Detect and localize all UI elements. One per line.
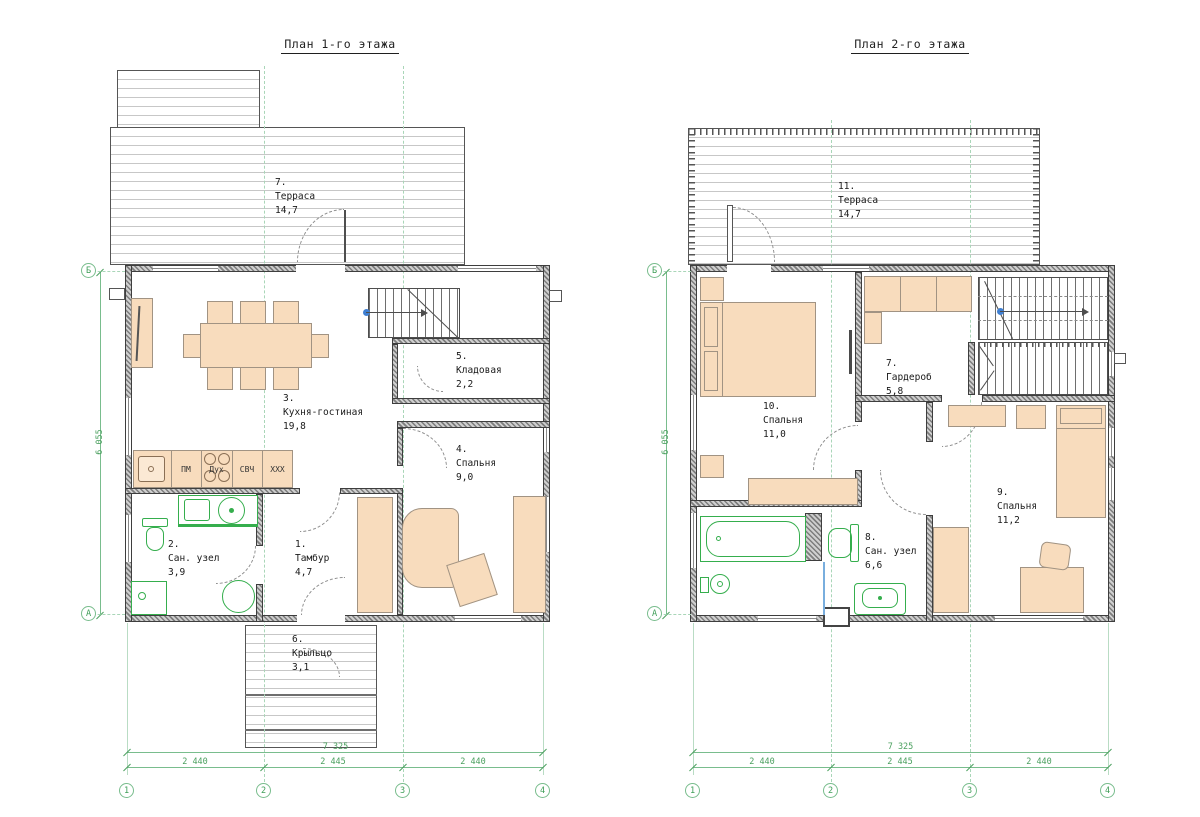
room-area: 5,8 (886, 385, 932, 399)
pillow (704, 307, 718, 347)
room-area: 3,1 (292, 661, 332, 675)
room-number: 11. (838, 180, 878, 194)
oven-label: Дух (201, 450, 232, 488)
room-name: Кухня-гостиная (283, 406, 363, 420)
sink-drain (148, 466, 154, 472)
room-name: Спальня (997, 500, 1037, 514)
bed-divider (722, 303, 723, 396)
bedroom-door-arc (403, 428, 447, 468)
tambur-wardrobe (357, 497, 393, 613)
grid-axis-2 (264, 66, 265, 782)
dim-total-width: 7 325 (873, 742, 928, 752)
room-name: Сан. узел (865, 545, 916, 559)
room-label-terrace2: 11. Терраса 14,7 (838, 180, 878, 222)
shelf-divider (900, 276, 901, 312)
window (995, 615, 1083, 622)
tv-stand (131, 298, 153, 368)
grid-bubble-3: 3 (962, 783, 977, 798)
entrance-door-arc (301, 577, 345, 615)
room-area: 9,0 (456, 471, 496, 485)
room-label-bedroom10: 10. Спальня 11,0 (763, 400, 803, 442)
storage-wall-bottom (392, 398, 550, 404)
tv-panel (849, 330, 852, 374)
dining-table (200, 323, 312, 368)
dresser (748, 478, 858, 505)
window (823, 265, 869, 272)
shower-mixer (700, 577, 709, 593)
dim-total-height: 6 055 (661, 416, 671, 468)
terrace-door-leaf (344, 210, 346, 262)
room-area: 11,0 (763, 428, 803, 442)
room-label-bedroom9: 9. Спальня 11,2 (997, 486, 1037, 528)
chair (207, 367, 233, 390)
room-label-tambur: 1. Тамбур 4,7 (295, 538, 329, 580)
tub-drain (716, 536, 721, 541)
bedroom9-top-wall (982, 395, 1115, 402)
window (125, 515, 132, 562)
shower-head-center (717, 581, 723, 587)
kitchen-door-arc (300, 492, 340, 532)
terrace-railing-top (688, 128, 1040, 135)
room-area: 6,6 (865, 559, 916, 573)
chair (1038, 541, 1071, 571)
grid-bubble-2: 2 (823, 783, 838, 798)
dim-span-1-2: 2 440 (170, 757, 220, 767)
bath-tambur-wall (256, 584, 263, 622)
floor1-title-text: План 1-го этажа (281, 37, 398, 54)
nightstand (700, 277, 724, 301)
bath-bedroom9-wall (926, 515, 933, 622)
room-name: Спальня (763, 414, 803, 428)
room-number: 8. (865, 531, 916, 545)
shower-drain (138, 592, 146, 600)
room-name: Крыльцо (292, 647, 332, 661)
window (455, 615, 521, 622)
room-area: 11,2 (997, 514, 1037, 528)
window (690, 395, 697, 450)
vent-stub (549, 290, 562, 302)
room-number: 7. (886, 357, 932, 371)
room-name: Сан. узел (168, 552, 219, 566)
room-number: 9. (997, 486, 1037, 500)
bath2-door-arc (880, 470, 926, 515)
room-name: Спальня (456, 457, 496, 471)
grid-bubble-2: 2 (256, 783, 271, 798)
room-name: Гардероб (886, 371, 932, 385)
storage-wall-left (392, 344, 398, 404)
stairs-stringer (978, 320, 1108, 321)
bath-door-arc (216, 546, 256, 584)
chair (273, 301, 299, 324)
room-name: Тамбур (295, 552, 329, 566)
room-number: 6. (292, 633, 332, 647)
stairs-stringer (978, 296, 1108, 297)
microwave-label: СВЧ (232, 450, 262, 488)
bedroom10-door-arc (813, 425, 858, 470)
grid-bubble-4: 4 (535, 783, 550, 798)
pillow (704, 351, 718, 391)
stairs-direction-line (366, 312, 422, 313)
room-number: 4. (456, 443, 496, 457)
dim-span-1-2: 2 440 (737, 757, 787, 767)
kitchen-tambur-wall (340, 488, 403, 494)
room-area: 14,7 (275, 204, 315, 218)
stairs-direction-arrow (421, 309, 432, 317)
room-label-bathroom: 2. Сан. узел 3,9 (168, 538, 219, 580)
stairs-tick-band (978, 342, 1108, 347)
room-label-storage: 5. Кладовая 2,2 (456, 350, 502, 392)
bath-counter-edge (178, 524, 258, 527)
window (1108, 428, 1115, 456)
terrace-door-opening (727, 265, 771, 272)
sink-drain (878, 596, 882, 600)
framed-window (823, 607, 850, 627)
shelf-divider (936, 276, 937, 312)
chair (311, 334, 329, 358)
chair (183, 334, 201, 358)
room-label-kitchen-living: 3. Кухня-гостиная 19,8 (283, 392, 363, 434)
room-number: 10. (763, 400, 803, 414)
chair (207, 301, 233, 324)
stairs-direction-line (1000, 311, 1083, 312)
room-area: 3,9 (168, 566, 219, 580)
room-number: 7. (275, 176, 315, 190)
grid-bubble-a: А (647, 606, 662, 621)
terrace-railing-left (688, 128, 695, 265)
cabinet (948, 405, 1006, 427)
grid-bubble-1: 1 (119, 783, 134, 798)
room-label-bathroom2: 8. Сан. узел 6,6 (865, 531, 916, 573)
floor1-terrace-deck-upper (117, 70, 260, 128)
window (458, 265, 536, 272)
grid-bubble-b: Б (647, 263, 662, 278)
window (758, 615, 816, 622)
dim-total-width: 7 325 (308, 742, 363, 752)
appliance-label: XXX (262, 450, 293, 488)
stairs-lower-flight (978, 342, 1108, 395)
wall-under-stairs (392, 338, 550, 344)
chair (240, 301, 266, 324)
tall-cabinet (933, 527, 969, 613)
room-area: 2,2 (456, 378, 502, 392)
storage-door-arc (417, 366, 443, 392)
toilet-bowl (828, 528, 852, 558)
toilet-bowl (146, 527, 164, 551)
room-label-bedroom: 4. Спальня 9,0 (456, 443, 496, 485)
chair (240, 367, 266, 390)
room-number: 1. (295, 538, 329, 552)
grid-axis-3 (970, 120, 971, 782)
dimension-line-spans (127, 767, 543, 768)
bath-sink (184, 499, 210, 521)
terrace-railing-right (1033, 128, 1040, 265)
entrance-door-opening (297, 615, 345, 622)
dim-span-2-3: 2 445 (308, 757, 358, 767)
grid-bubble-a: А (81, 606, 96, 621)
room-area: 4,7 (295, 566, 329, 580)
window (690, 513, 697, 568)
room-name: Терраса (838, 194, 878, 208)
terrace-door-opening (296, 265, 345, 272)
grid-bubble-b: Б (81, 263, 96, 278)
room-area: 14,7 (838, 208, 878, 222)
dim-span-3-4: 2 440 (1014, 757, 1064, 767)
vent-stub (109, 288, 125, 300)
stairs-side-wall (968, 342, 975, 395)
grid-bubble-1: 1 (685, 783, 700, 798)
desk (1020, 567, 1084, 613)
room-number: 2. (168, 538, 219, 552)
floor2-title: План 2-го этажа (820, 33, 1000, 54)
hall-bedroom9-wall (926, 402, 933, 442)
pillow (1060, 408, 1102, 424)
dimension-line-overall (693, 752, 1108, 753)
room-label-porch: 6. Крыльцо 3,1 (292, 633, 332, 675)
floor2-title-text: План 2-го этажа (851, 37, 968, 54)
toilet-tank (142, 518, 168, 527)
dimension-line-overall (127, 752, 543, 753)
room-number: 5. (456, 350, 502, 364)
grid-bubble-4: 4 (1100, 783, 1115, 798)
cabinet (1016, 405, 1046, 429)
grid-bubble-3: 3 (395, 783, 410, 798)
chair (273, 367, 299, 390)
tub-partition (805, 513, 822, 561)
kitchen-tambur-wall (125, 488, 300, 494)
dishwasher-label: ПМ (171, 450, 201, 488)
room-name: Кладовая (456, 364, 502, 378)
room-label-wardrobe: 7. Гардероб 5,8 (886, 357, 932, 399)
window (125, 398, 132, 455)
bedroom-wall-top (397, 421, 550, 428)
dim-span-2-3: 2 445 (875, 757, 925, 767)
washer-dot (229, 508, 234, 513)
shower-tray (131, 581, 167, 615)
dim-total-height: 6 055 (95, 416, 105, 468)
room-name: Терраса (275, 190, 315, 204)
water-pipe (823, 562, 825, 615)
dimension-line-spans (693, 767, 1108, 768)
dim-span-3-4: 2 440 (448, 757, 498, 767)
window (543, 428, 550, 452)
floorplan-drawing: План 1-го этажа (0, 0, 1200, 817)
water-heater (222, 580, 255, 613)
window (153, 265, 218, 272)
room-area: 19,8 (283, 420, 363, 434)
room-label-terrace: 7. Терраса 14,7 (275, 176, 315, 218)
bedroom-wardrobe (513, 496, 546, 613)
cabinet (700, 455, 724, 478)
wardrobe-shelves (864, 276, 972, 312)
room-number: 3. (283, 392, 363, 406)
wardrobe-shelf-side (864, 312, 882, 344)
stairs-direction-arrow (1082, 308, 1093, 316)
floor1-title: План 1-го этажа (250, 33, 430, 54)
vent-stub (1114, 353, 1126, 364)
bed-divider (1057, 428, 1105, 429)
window (1108, 468, 1115, 500)
